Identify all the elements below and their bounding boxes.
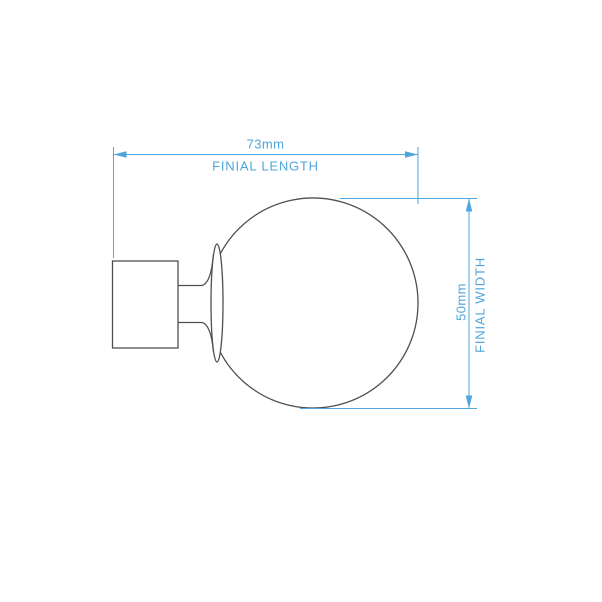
finial-collar-rim	[211, 244, 223, 362]
width-label: FINIAL WIDTH	[474, 257, 487, 353]
arrowhead-up-icon	[466, 199, 473, 212]
length-label: FINIAL LENGTH	[212, 160, 319, 173]
finial-outline	[113, 198, 419, 408]
width-value: 50mm	[454, 283, 467, 321]
finial-dimension-diagram: 73mm FINIAL LENGTH 50mm FINIAL WIDTH	[0, 0, 602, 602]
finial-base	[113, 261, 179, 348]
arrowhead-left-icon	[114, 151, 127, 158]
finial-technical-drawing	[0, 0, 602, 602]
arrowhead-down-icon	[466, 396, 473, 409]
finial-ball	[220, 198, 418, 408]
arrowhead-right-icon	[405, 151, 418, 158]
length-value: 73mm	[247, 138, 285, 151]
